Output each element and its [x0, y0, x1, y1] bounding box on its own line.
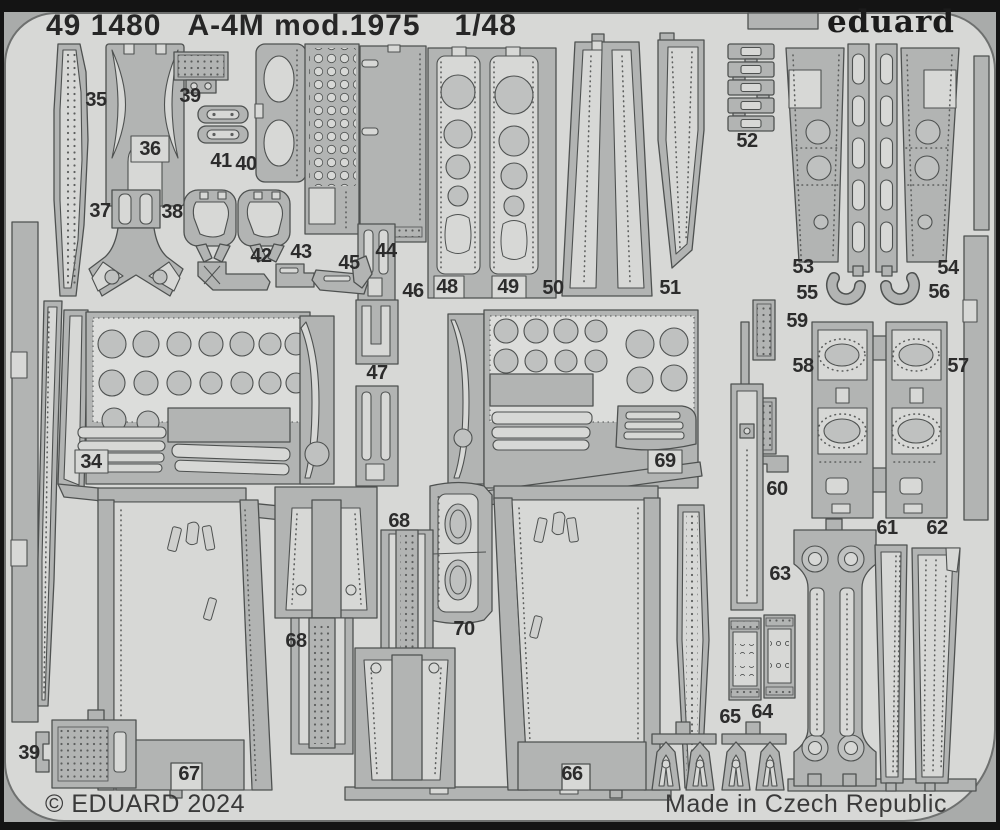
part-label-69: 69 — [654, 451, 675, 471]
part-41-pads — [198, 106, 248, 143]
part-43-bracket — [276, 264, 314, 287]
catalog-number: 49 1480 — [46, 9, 161, 42]
part-label-63: 63 — [769, 564, 790, 584]
part-label-47: 47 — [366, 363, 387, 383]
header: 49 1480A-4M mod.19751/48 — [46, 9, 517, 43]
part-57-panel — [886, 322, 947, 518]
part-label-34: 34 — [80, 452, 101, 472]
part-label-64: 64 — [751, 702, 772, 722]
part-label-52: 52 — [736, 131, 757, 151]
part-47-forks — [356, 300, 398, 486]
part-label-38: 38 — [161, 202, 182, 222]
part-label-50: 50 — [542, 278, 563, 298]
made-in-text: Made in Czech Republic — [665, 790, 947, 819]
part-label-66: 66 — [561, 764, 582, 784]
part-38-rings — [184, 190, 290, 262]
part-label-54: 54 — [937, 258, 958, 278]
part-49-strip — [490, 56, 538, 274]
part-label-59: 59 — [786, 311, 807, 331]
fret-illustration — [0, 0, 1000, 830]
part-39-lower — [36, 710, 136, 788]
part-label-56: 56 — [928, 282, 949, 302]
part-label-60: 60 — [766, 479, 787, 499]
part-58-panel — [812, 322, 890, 518]
part-40-panel — [255, 44, 306, 182]
copyright-text: © EDUARD 2024 — [45, 790, 245, 819]
part-66-panel — [494, 486, 660, 790]
part-label-68: 68 — [285, 631, 306, 651]
part-label-36: 36 — [139, 139, 160, 159]
part-label-44: 44 — [375, 241, 396, 261]
part-label-48: 48 — [436, 277, 457, 297]
part-label-68: 68 — [388, 511, 409, 531]
part-63-strip — [731, 384, 763, 610]
part-label-70: 70 — [453, 619, 474, 639]
part-36-yoke — [106, 44, 184, 206]
part-label-65: 65 — [719, 707, 740, 727]
part-48-strip — [437, 56, 480, 274]
part-label-45: 45 — [338, 253, 359, 273]
part-label-57: 57 — [947, 356, 968, 376]
part-label-62: 62 — [926, 518, 947, 538]
part-62-blade — [912, 548, 960, 791]
part-label-49: 49 — [497, 277, 518, 297]
part-label-41: 41 — [210, 151, 231, 171]
part-label-46: 46 — [402, 281, 423, 301]
part-label-40: 40 — [235, 154, 256, 174]
part-70 — [430, 483, 492, 624]
brand-logo: eduard — [827, 4, 955, 40]
clamp-parts — [652, 722, 786, 790]
part-label-55: 55 — [796, 283, 817, 303]
part-label-53: 53 — [792, 257, 813, 277]
part-53-panel — [786, 48, 844, 262]
part-label-61: 61 — [876, 518, 897, 538]
part-label-37: 37 — [89, 201, 110, 221]
part-label-35: 35 — [85, 90, 106, 110]
part-label-43: 43 — [290, 242, 311, 262]
scale: 1/48 — [455, 9, 517, 42]
part-54-panel — [901, 48, 959, 262]
pe-fret-diagram: 49 1480A-4M mod.19751/48 eduard © EDUARD… — [0, 0, 1000, 830]
part-label-51: 51 — [659, 278, 680, 298]
part-65-pad — [729, 618, 761, 700]
part-52-chain — [728, 44, 774, 131]
part-51-blade — [658, 40, 704, 268]
part-label-67: 67 — [178, 764, 199, 784]
part-50-strips — [562, 41, 652, 296]
part-label-39: 39 — [18, 743, 39, 763]
part-64-pad — [764, 615, 795, 698]
perforated-panel — [305, 44, 359, 234]
part-label-42: 42 — [250, 246, 271, 266]
hinge-plate — [794, 519, 876, 786]
kit-title: A-4M mod.1975 — [187, 9, 420, 42]
part-61-blade — [875, 545, 907, 791]
part-label-39: 39 — [179, 86, 200, 106]
part-label-58: 58 — [792, 356, 813, 376]
part-44-panel — [360, 45, 426, 242]
